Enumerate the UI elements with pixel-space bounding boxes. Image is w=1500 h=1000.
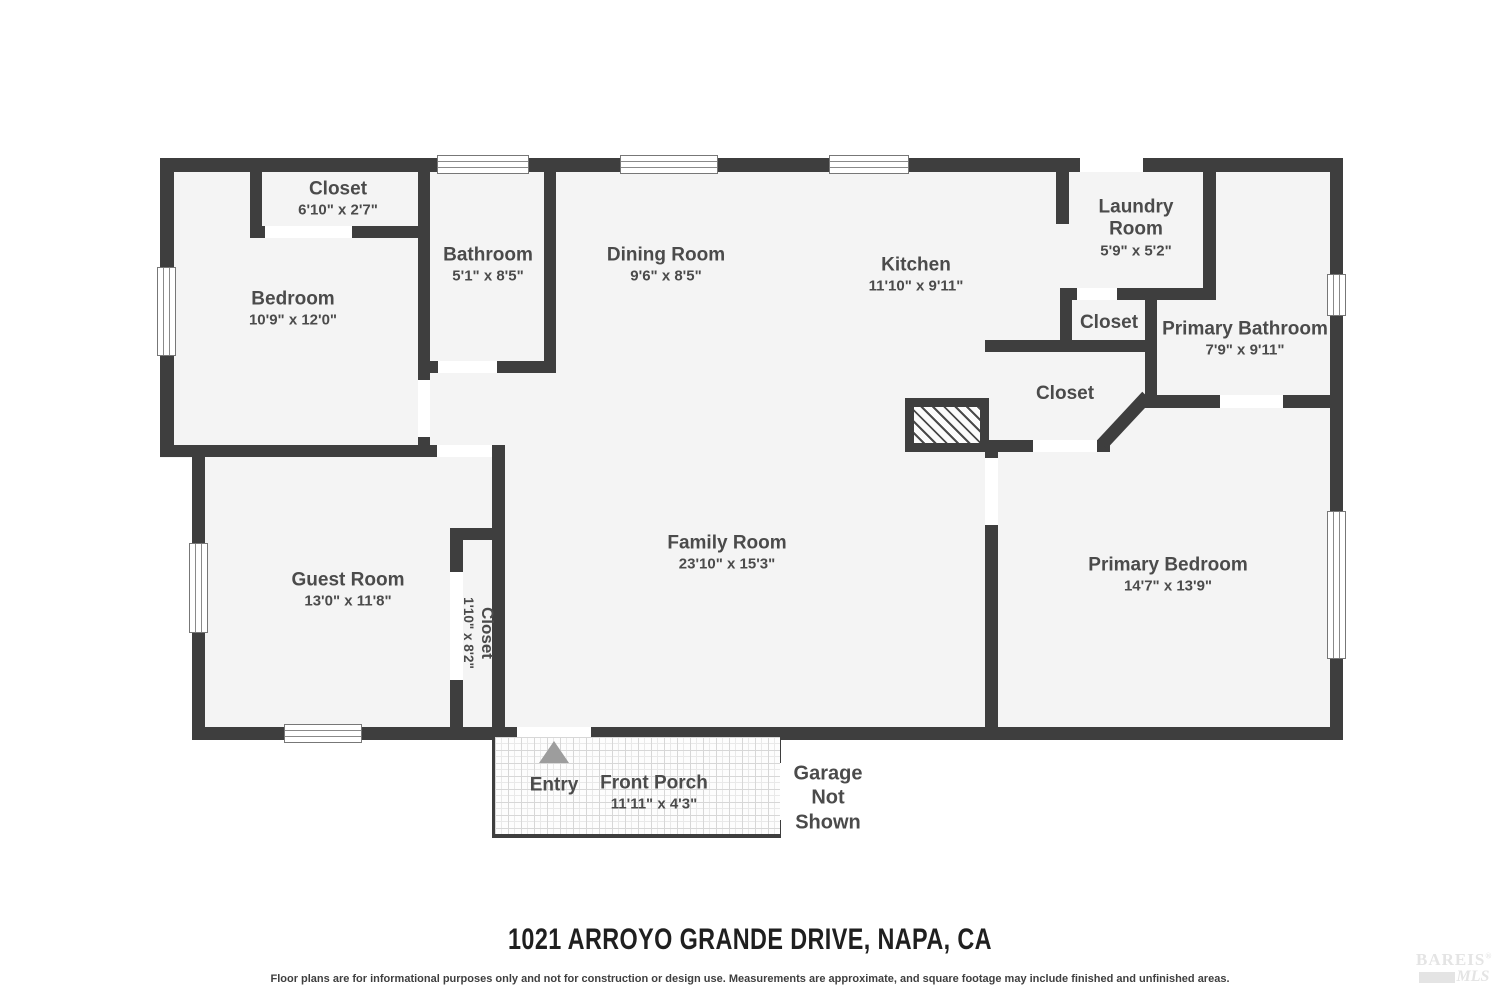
- wall-closet-laundry-left: [1060, 288, 1072, 348]
- room-label-guest-room: Guest Room 13'0" x 11'8": [292, 570, 405, 613]
- room-label-family-room: Family Room 23'10" x 15'3": [667, 533, 786, 576]
- room-label-primary-bathroom: Primary Bathroom 7'9" x 9'11": [1162, 319, 1328, 362]
- floor-plan-page: Closet 6'10" x 2'7" Bedroom 10'9" x 12'0…: [0, 0, 1500, 1000]
- logo-bar: [1419, 972, 1455, 983]
- window-primary-bedroom-right: [1327, 511, 1346, 659]
- room-label-closet-top-left: Closet 6'10" x 2'7": [298, 179, 378, 222]
- window-dining-top: [620, 155, 718, 174]
- door-opening-closet1: [265, 226, 352, 238]
- door-opening-closet-laundry: [1077, 288, 1117, 300]
- door-opening-closet-hall: [1033, 440, 1097, 452]
- room-label-bedroom: Bedroom 10'9" x 12'0": [249, 289, 337, 332]
- wall-top: [160, 158, 1343, 172]
- entry-arrow-icon: [539, 741, 569, 763]
- room-label-closet-guest: Closet 1'10" x 8'2": [459, 597, 497, 669]
- door-opening-bedroom: [418, 380, 430, 437]
- garage-note: Garage Not Shown: [788, 761, 868, 834]
- logo-sub: MLS: [1457, 969, 1490, 985]
- window-bathroom-top: [437, 155, 529, 174]
- hatched-fixture: [905, 398, 989, 452]
- room-label-bathroom: Bathroom 5'1" x 8'5": [443, 245, 533, 288]
- wall-kitchen-laundry-stub: [1056, 172, 1069, 224]
- logo-name: BAREIS: [1416, 950, 1485, 969]
- door-opening-primary-bathroom: [1220, 395, 1283, 408]
- window-kitchen-top: [829, 155, 909, 174]
- wall-guest-right: [492, 450, 505, 740]
- address-title: 1021 ARROYO GRANDE DRIVE, NAPA, CA: [165, 923, 1335, 957]
- door-opening-primary-bedroom: [985, 458, 998, 525]
- wall-laundry-right: [1203, 172, 1216, 300]
- wall-closet-hall-top: [985, 340, 1157, 352]
- room-label-dining-room: Dining Room 9'6" x 8'5": [607, 245, 725, 288]
- window-bedroom-left: [157, 267, 176, 356]
- door-opening-guest: [437, 445, 492, 457]
- opening-laundry-top: [1080, 158, 1143, 172]
- door-opening-bathroom: [438, 361, 497, 373]
- registered-mark-icon: ®: [1485, 951, 1492, 960]
- room-label-primary-bedroom: Primary Bedroom 14'7" x 13'9": [1088, 555, 1247, 598]
- window-guest-left: [189, 543, 208, 633]
- room-label-front-porch: Front Porch 11'11" x 4'3": [600, 773, 708, 816]
- window-primary-bathroom-right: [1327, 274, 1346, 316]
- room-label-closet-laundry: Closet: [1080, 312, 1138, 334]
- room-label-laundry-room: Laundry Room 5'9" x 5'2": [1081, 196, 1191, 261]
- room-label-closet-hall: Closet: [1036, 383, 1094, 405]
- bareis-mls-logo: BAREIS® MLS: [1416, 951, 1492, 985]
- window-guest-bottom: [284, 724, 362, 743]
- disclaimer-text: Floor plans are for informational purpos…: [0, 973, 1500, 985]
- room-label-kitchen: Kitchen 11'10" x 9'11": [869, 255, 964, 298]
- entry-label: Entry: [530, 773, 579, 796]
- wall-bathroom-right: [544, 172, 556, 373]
